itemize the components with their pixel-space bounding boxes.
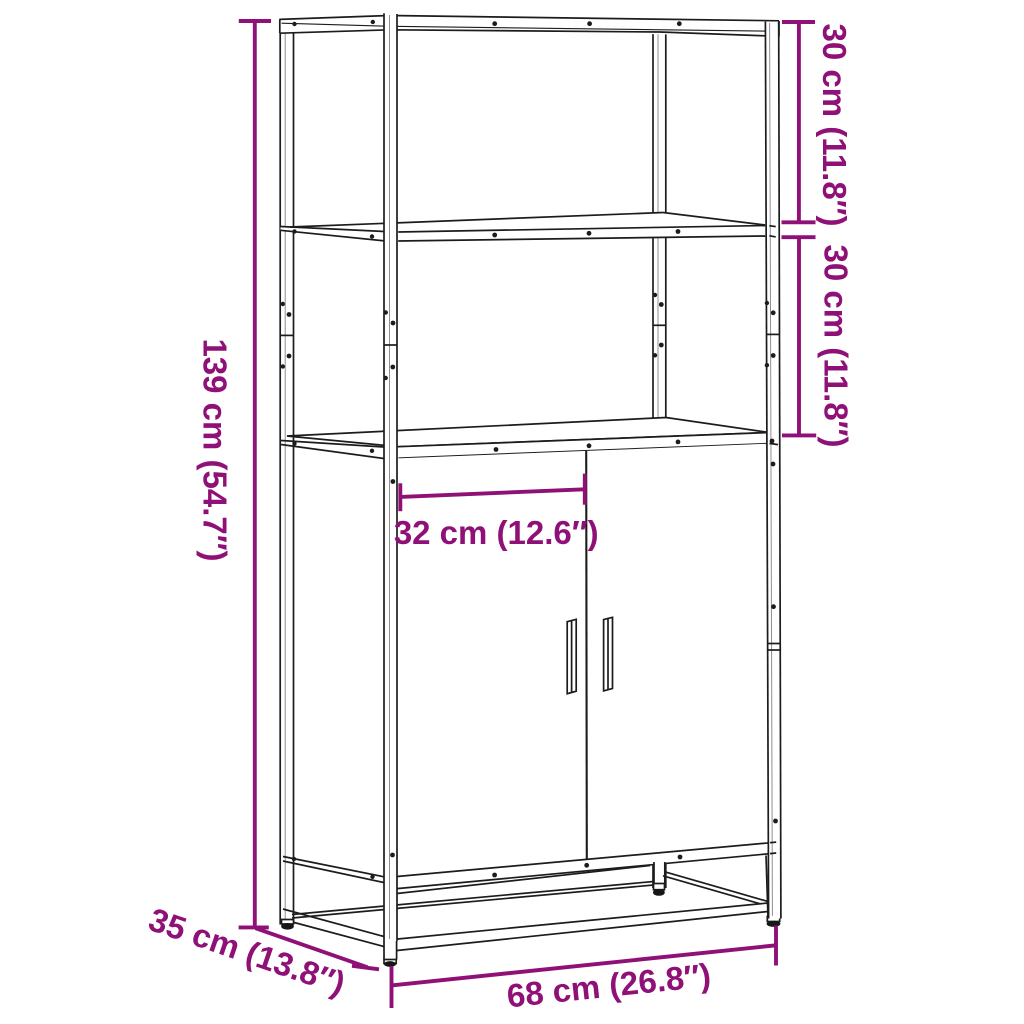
svg-text:30 cm (11.8″): 30 cm (11.8″) <box>818 245 855 448</box>
svg-text:139 cm (54.7″): 139 cm (54.7″) <box>197 338 234 561</box>
svg-text:30 cm (11.8″): 30 cm (11.8″) <box>816 24 853 227</box>
svg-text:32 cm (12.6″): 32 cm (12.6″) <box>394 514 599 551</box>
